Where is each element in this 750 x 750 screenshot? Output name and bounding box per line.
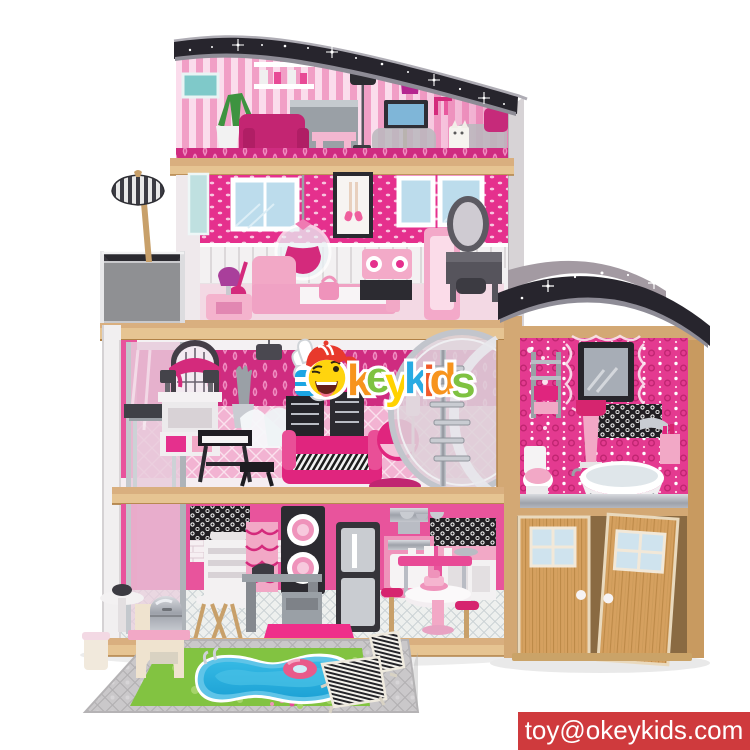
svg-text:keykids: keykids xyxy=(347,353,474,408)
svg-text:toy@okeykids.com: toy@okeykids.com xyxy=(525,715,744,745)
